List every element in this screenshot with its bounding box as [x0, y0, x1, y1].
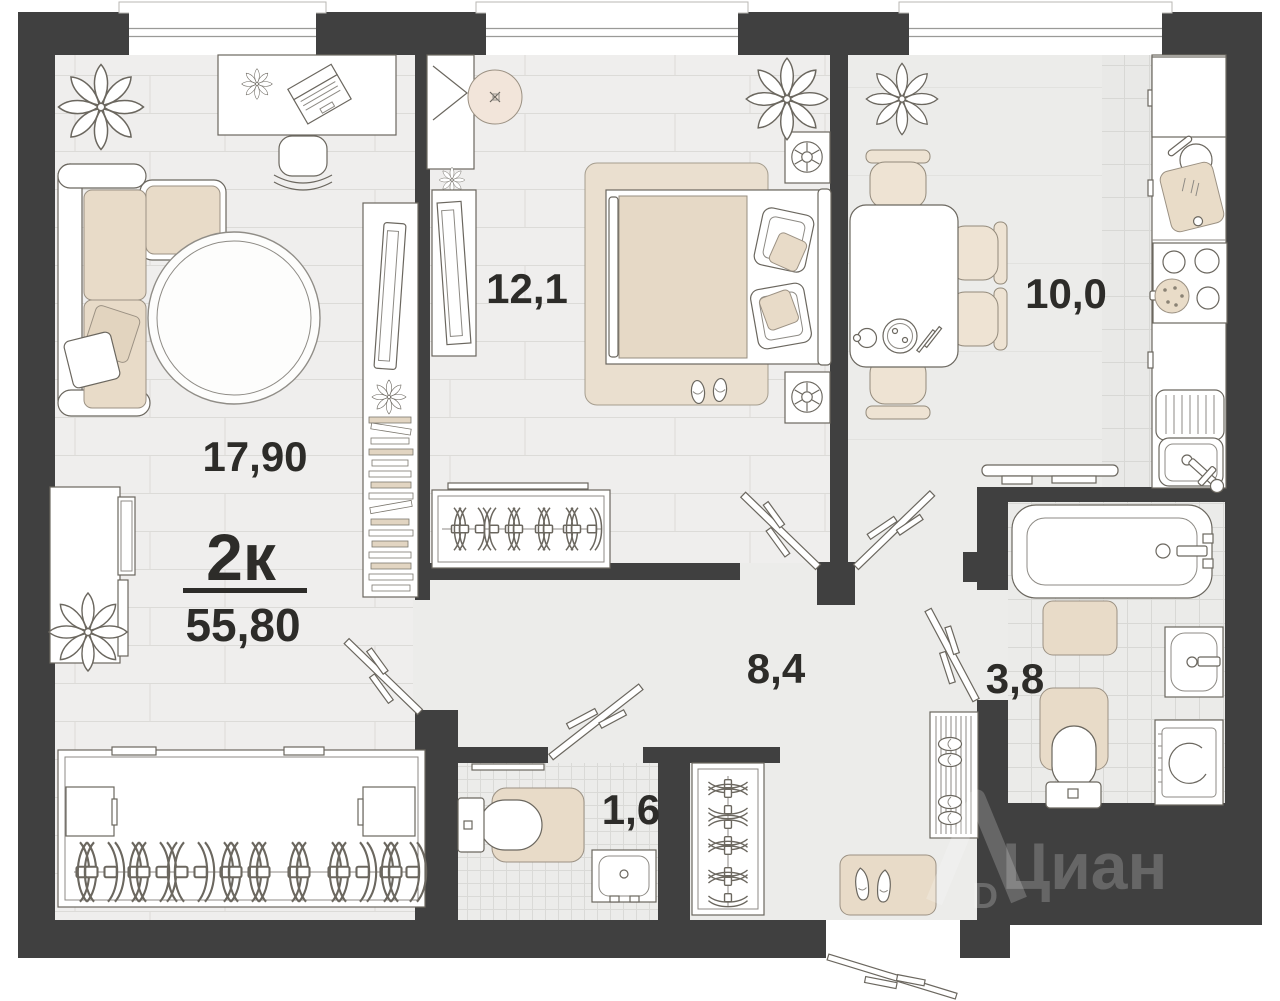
fridge	[1152, 57, 1226, 137]
watermark-letter: D	[972, 875, 998, 916]
plant-icon	[49, 593, 127, 671]
kitchen-tile-strip	[1102, 55, 1152, 487]
bathroom-area-label: 3,8	[986, 655, 1044, 702]
wc-toilet	[458, 788, 584, 862]
plant-icon	[866, 63, 937, 134]
kitchen-window	[909, 12, 1162, 55]
window-sill	[476, 2, 748, 13]
nightstand	[785, 372, 830, 423]
plant-icon	[242, 69, 273, 100]
bath-mat	[1043, 601, 1117, 655]
cooktop	[1150, 243, 1227, 323]
towel-rail	[472, 764, 544, 770]
plant-icon	[439, 167, 465, 193]
nightstand	[785, 132, 830, 183]
hallway-area-label: 8,4	[747, 645, 806, 692]
plant-icon	[59, 65, 144, 150]
bedroom-window	[486, 12, 738, 55]
divider-line	[183, 588, 307, 593]
tv-unit	[363, 203, 418, 597]
washing-machine	[1155, 720, 1223, 805]
bathroom-sink	[1165, 627, 1223, 697]
bedroom-area-label: 12,1	[486, 265, 568, 312]
kitchen-sink	[1156, 390, 1224, 493]
kitchen-area-label: 10,0	[1025, 270, 1107, 317]
bathtub	[1012, 505, 1213, 598]
plant-icon	[746, 58, 828, 140]
windows	[119, 2, 1172, 55]
door-mat	[840, 855, 936, 915]
floor-plan-page: 17,90 12,1 10,0 8,4 3,8 1,6 2к 55,80 Циа…	[0, 0, 1280, 1001]
entrance-door	[824, 951, 958, 1001]
floor-plan-svg: 17,90 12,1 10,0 8,4 3,8 1,6 2к 55,80 Циа…	[0, 0, 1280, 1001]
apartment-type-label: 2к	[206, 520, 277, 594]
wc-sink	[592, 850, 656, 902]
plant-icon	[372, 380, 406, 414]
bedroom-wall-unit	[432, 190, 476, 356]
round-rug	[148, 232, 320, 404]
living-room-area-label: 17,90	[202, 433, 307, 480]
kitchen-counter	[1148, 55, 1227, 493]
watermark-brand: Циан	[1002, 829, 1167, 903]
desk	[218, 55, 396, 135]
window-sill	[899, 2, 1172, 13]
total-area-label: 55,80	[185, 599, 300, 651]
bedroom-closet	[432, 483, 610, 568]
living-room-wardrobe	[58, 747, 426, 907]
toilet	[1040, 688, 1108, 808]
wc-area-label: 1,6	[602, 786, 660, 833]
living-room-window	[129, 12, 316, 55]
window-sill	[119, 2, 326, 13]
hallway-closet	[692, 763, 764, 915]
